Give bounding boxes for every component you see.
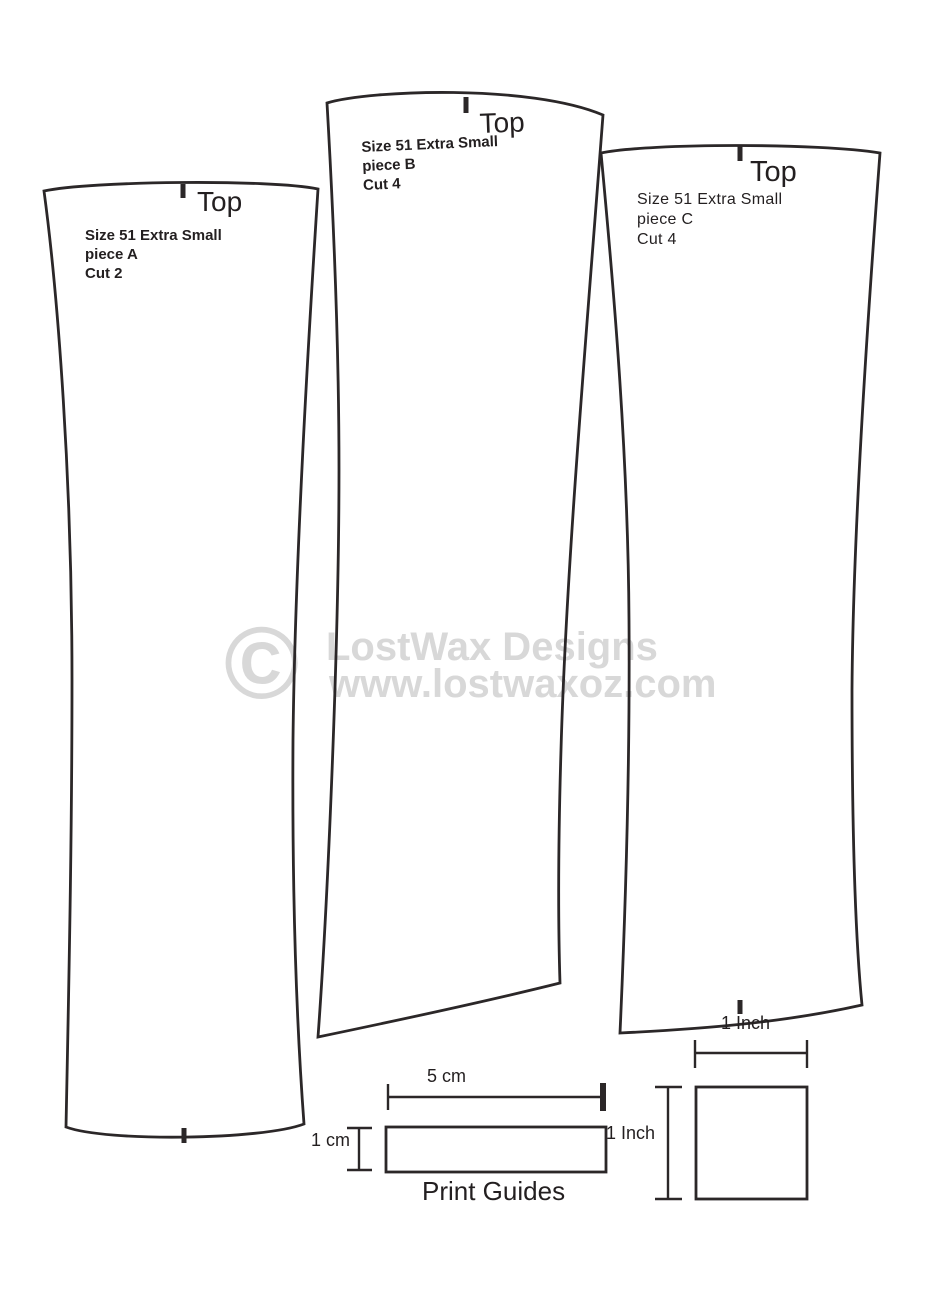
piece-b-outline xyxy=(318,92,603,1037)
guide-1inch-height-label: 1 Inch xyxy=(606,1123,655,1144)
pattern-sheet: © LostWax Designs www.lostwaxoz.com xyxy=(0,0,950,1303)
piece-c-info: Size 51 Extra Small piece C Cut 4 xyxy=(637,190,782,250)
piece-a-size-line: Size 51 Extra Small xyxy=(85,226,222,245)
piece-a-top-label: Top xyxy=(197,186,242,218)
piece-c-size-line: Size 51 Extra Small xyxy=(637,190,782,210)
pattern-linework xyxy=(0,0,950,1303)
guide-1inch-width-label: 1 Inch xyxy=(721,1013,770,1034)
guide-5cm-label: 5 cm xyxy=(427,1066,466,1087)
piece-a-outline xyxy=(44,182,318,1137)
guide-1inch-square xyxy=(696,1087,807,1199)
piece-c-cut-line: Cut 4 xyxy=(637,230,782,250)
print-guides-title: Print Guides xyxy=(422,1177,565,1207)
piece-a-piece-line: piece A xyxy=(85,245,222,264)
piece-a-info: Size 51 Extra Small piece A Cut 2 xyxy=(85,226,222,283)
piece-c-outline xyxy=(601,146,880,1034)
guide-1cm-label: 1 cm xyxy=(311,1130,350,1151)
guide-5cm-rectangle xyxy=(386,1127,606,1172)
piece-c-top-label: Top xyxy=(750,156,797,189)
piece-b-info: Size 51 Extra Small piece B Cut 4 xyxy=(361,132,500,195)
piece-c-piece-line: piece C xyxy=(637,210,782,230)
piece-a-cut-line: Cut 2 xyxy=(85,264,222,283)
